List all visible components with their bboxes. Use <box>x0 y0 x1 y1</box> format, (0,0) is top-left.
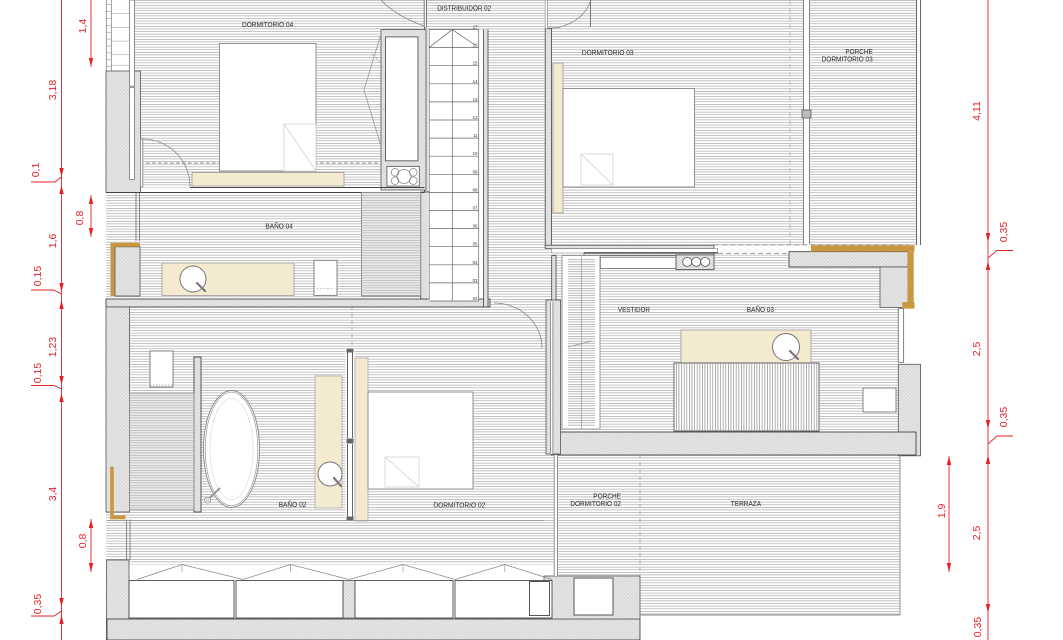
svg-text:4,11: 4,11 <box>971 101 983 121</box>
svg-text:06: 06 <box>473 224 478 229</box>
svg-text:14: 14 <box>473 79 478 84</box>
svg-text:0,8: 0,8 <box>74 211 86 226</box>
svg-text:BAÑO 04: BAÑO 04 <box>265 221 293 230</box>
svg-text:04: 04 <box>473 260 478 265</box>
svg-text:DORMITORIO 02: DORMITORIO 02 <box>433 500 485 509</box>
svg-text:13: 13 <box>473 97 478 102</box>
svg-text:11: 11 <box>473 133 478 138</box>
svg-text:07: 07 <box>473 206 478 211</box>
svg-text:0,35: 0,35 <box>998 407 1010 428</box>
svg-text:DORMITORIO 04: DORMITORIO 04 <box>242 20 293 29</box>
svg-text:1,4: 1,4 <box>77 19 89 34</box>
svg-text:3,4: 3,4 <box>47 487 59 502</box>
svg-text:1,6: 1,6 <box>47 234 59 249</box>
svg-text:2,5: 2,5 <box>971 342 983 357</box>
svg-text:0,35: 0,35 <box>972 617 984 638</box>
svg-text:3,18: 3,18 <box>47 80 59 101</box>
svg-text:03: 03 <box>473 278 478 283</box>
svg-text:16: 16 <box>473 43 478 48</box>
svg-text:0,35: 0,35 <box>32 594 44 615</box>
svg-text:DORMITORIO 03: DORMITORIO 03 <box>582 48 634 57</box>
svg-text:BAÑO 03: BAÑO 03 <box>747 305 774 314</box>
svg-text:02: 02 <box>473 296 478 301</box>
svg-text:05: 05 <box>473 242 478 247</box>
svg-text:0,15: 0,15 <box>32 266 44 287</box>
svg-text:0,1: 0,1 <box>30 163 42 178</box>
svg-text:10: 10 <box>473 151 478 156</box>
svg-text:17: 17 <box>473 25 478 30</box>
svg-text:1,23: 1,23 <box>47 337 59 358</box>
svg-text:09: 09 <box>473 169 478 174</box>
svg-text:0,8: 0,8 <box>77 534 89 549</box>
svg-text:2,5: 2,5 <box>971 526 983 541</box>
svg-text:DORMITORIO 02: DORMITORIO 02 <box>570 499 621 508</box>
svg-text:0,35: 0,35 <box>998 222 1010 243</box>
svg-text:08: 08 <box>473 187 478 192</box>
svg-text:BAÑO 02: BAÑO 02 <box>279 500 307 509</box>
svg-text:15: 15 <box>473 61 478 66</box>
svg-text:DORMITORIO 03: DORMITORIO 03 <box>822 55 873 64</box>
svg-text:12: 12 <box>473 115 478 120</box>
svg-text:DISTRIBUIDOR 02: DISTRIBUIDOR 02 <box>437 3 491 12</box>
svg-text:1,9: 1,9 <box>936 504 948 519</box>
svg-text:TERRAZA: TERRAZA <box>731 499 761 508</box>
svg-text:0,15: 0,15 <box>32 363 44 384</box>
svg-text:VESTIDOR: VESTIDOR <box>618 305 650 314</box>
